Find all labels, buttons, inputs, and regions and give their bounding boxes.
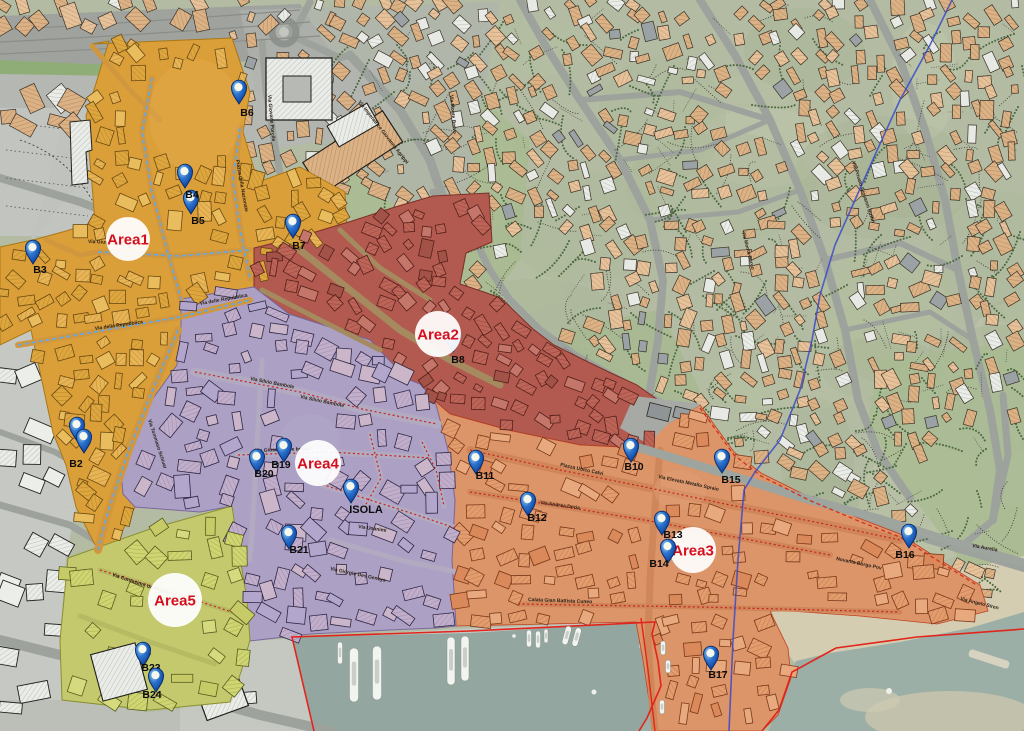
svg-text:B4: B4 bbox=[185, 189, 199, 201]
svg-text:Area5: Area5 bbox=[154, 592, 196, 609]
svg-text:B2: B2 bbox=[69, 458, 83, 470]
svg-text:B12: B12 bbox=[527, 512, 546, 524]
svg-text:B15: B15 bbox=[721, 474, 740, 486]
svg-text:B21: B21 bbox=[289, 544, 308, 556]
svg-text:B6: B6 bbox=[240, 107, 254, 119]
svg-text:ISOLA: ISOLA bbox=[349, 504, 383, 516]
svg-text:Area3: Area3 bbox=[672, 542, 714, 559]
svg-text:B7: B7 bbox=[292, 240, 306, 252]
svg-text:B8: B8 bbox=[451, 354, 465, 366]
svg-text:B24: B24 bbox=[142, 689, 161, 701]
svg-text:B19: B19 bbox=[271, 459, 290, 471]
svg-text:B10: B10 bbox=[624, 461, 643, 473]
svg-text:B14: B14 bbox=[649, 558, 668, 570]
svg-text:B3: B3 bbox=[33, 264, 47, 276]
svg-text:Area1: Area1 bbox=[107, 231, 149, 248]
svg-text:Area4: Area4 bbox=[297, 455, 339, 472]
svg-text:B11: B11 bbox=[476, 470, 495, 482]
svg-text:B16: B16 bbox=[895, 549, 914, 561]
svg-text:B5: B5 bbox=[191, 215, 205, 227]
svg-text:B17: B17 bbox=[708, 669, 727, 681]
svg-text:Area2: Area2 bbox=[417, 326, 459, 343]
